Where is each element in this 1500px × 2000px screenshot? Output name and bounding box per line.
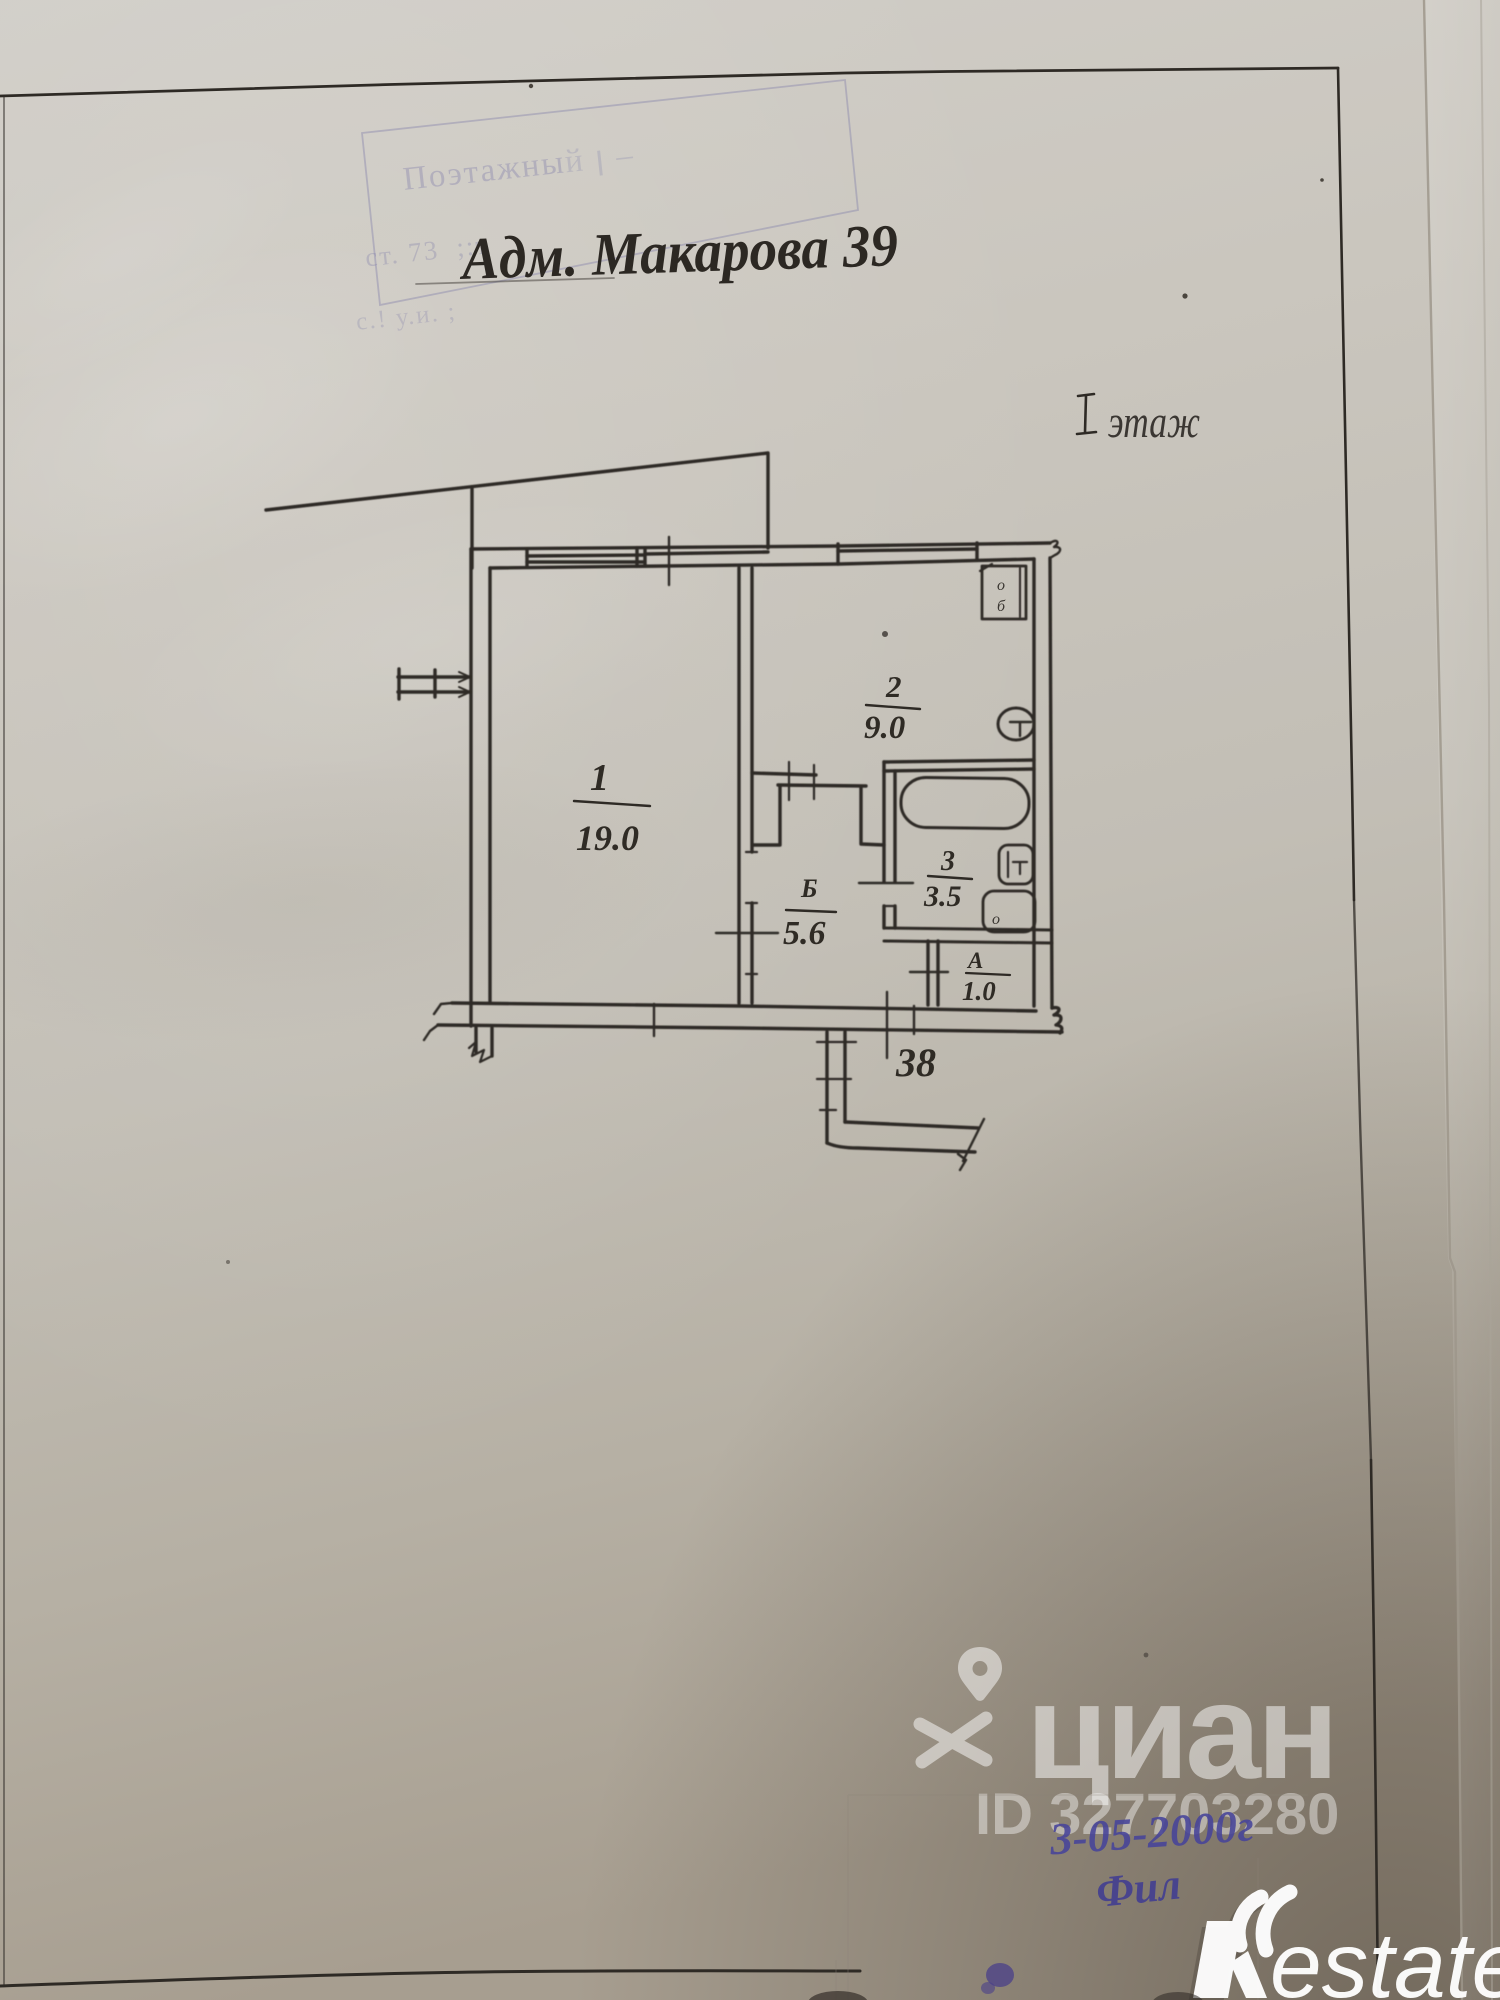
- svg-text:Фил: Фил: [1094, 1859, 1183, 1917]
- svg-text:5.6: 5.6: [783, 915, 826, 952]
- svg-text:estate: estate: [1270, 1913, 1500, 2000]
- svg-text:1.0: 1.0: [962, 976, 996, 1006]
- svg-text:3.5: 3.5: [923, 880, 962, 913]
- svg-text:о: о: [997, 577, 1005, 594]
- svg-text:Б: Б: [800, 874, 818, 903]
- svg-text:этаж: этаж: [1108, 396, 1200, 447]
- svg-text:38: 38: [895, 1040, 936, 1085]
- svg-text:2: 2: [885, 669, 902, 704]
- svg-text:19.0: 19.0: [576, 818, 639, 858]
- svg-text:1: 1: [590, 757, 609, 799]
- svg-text:3: 3: [940, 846, 955, 877]
- svg-text:б: б: [997, 598, 1006, 615]
- svg-text:о: о: [992, 911, 1000, 928]
- svg-text:9.0: 9.0: [864, 710, 905, 746]
- svg-text:А: А: [966, 948, 983, 973]
